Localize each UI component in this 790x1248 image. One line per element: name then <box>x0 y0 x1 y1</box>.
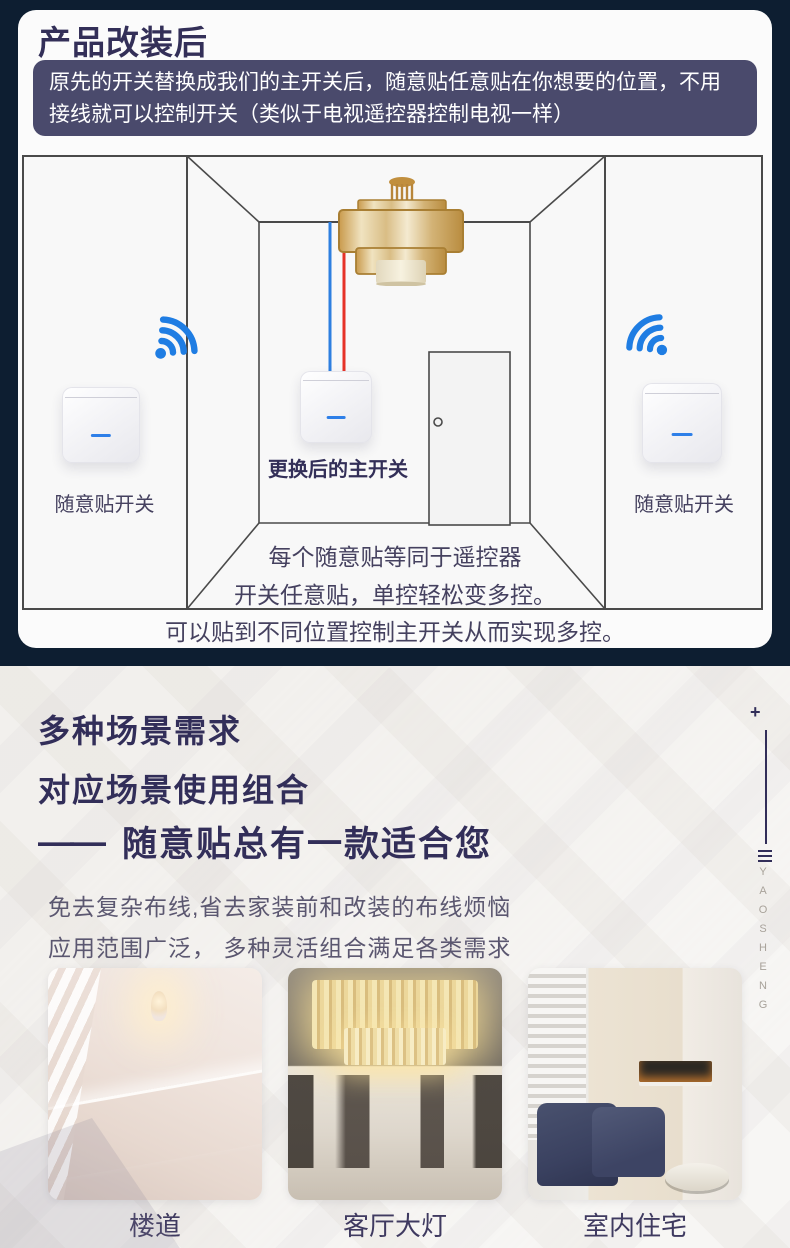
photo-caption-residence: 室内住宅 <box>528 1206 742 1243</box>
coffee-table-shape <box>665 1163 729 1191</box>
diagram-caption-1: 每个随意贴等同于遥控器 <box>18 538 772 572</box>
left-switch-label: 随意贴开关 <box>22 488 187 517</box>
photo-caption-stairway: 楼道 <box>48 1206 262 1243</box>
brand-vertical-text: YAOSHENG <box>757 866 769 1018</box>
diagram-caption-2: 开关任意贴，单控轻松变多控。 <box>18 576 772 610</box>
right-switch-label: 随意贴开关 <box>605 488 763 517</box>
after-modification-card: 产品改装后 原先的开关替换成我们的主开关后，随意贴任意贴在你想要的位置，不用接线… <box>18 10 772 648</box>
brand-divider-line <box>765 730 767 844</box>
tagline: 随意贴总有一款适合您 <box>122 816 492 867</box>
diagram-caption-3: 可以贴到不同位置控制主开关从而实现多控。 <box>18 613 772 647</box>
section-title: 产品改装后 <box>38 16 208 64</box>
cabinet-shape <box>288 1075 502 1168</box>
scenes-heading-1: 多种场景需求 <box>38 706 242 752</box>
scenes-desc-1: 免去复杂布线,省去家装前和改装的布线烦恼 <box>48 888 511 922</box>
scenes-heading-2: 对应场景使用组合 <box>38 765 310 811</box>
photo-livingroom-chandelier <box>288 968 502 1200</box>
photo-residence-interior <box>528 968 742 1200</box>
tagline-dash: —— <box>38 821 102 863</box>
tagline-row: —— 随意贴总有一款适合您 <box>38 816 492 867</box>
main-switch-label: 更换后的主开关 <box>228 453 448 482</box>
photo-caption-livingroom: 客厅大灯 <box>288 1206 502 1243</box>
photo-stairway <box>48 968 262 1200</box>
sticker-switch-left <box>62 387 140 463</box>
product-detail-page: 产品改装后 原先的开关替换成我们的主开关后，随意贴任意贴在你想要的位置，不用接线… <box>0 0 790 1248</box>
menu-icon <box>758 850 772 865</box>
info-box: 原先的开关替换成我们的主开关后，随意贴任意贴在你想要的位置，不用接线就可以控制开… <box>33 60 757 136</box>
sticker-switch-right <box>642 383 722 463</box>
sofa-shape <box>592 1107 665 1177</box>
main-switch <box>300 371 372 443</box>
chandelier-image <box>336 176 466 286</box>
plus-icon: + <box>750 702 761 723</box>
door <box>429 352 510 525</box>
stair-decor-shape <box>48 968 131 1200</box>
scenes-desc-2: 应用范围广泛， 多种灵活组合满足各类需求 <box>48 929 511 963</box>
scenes-section: 多种场景需求 对应场景使用组合 —— 随意贴总有一款适合您 免去复杂布线,省去家… <box>0 666 790 1248</box>
